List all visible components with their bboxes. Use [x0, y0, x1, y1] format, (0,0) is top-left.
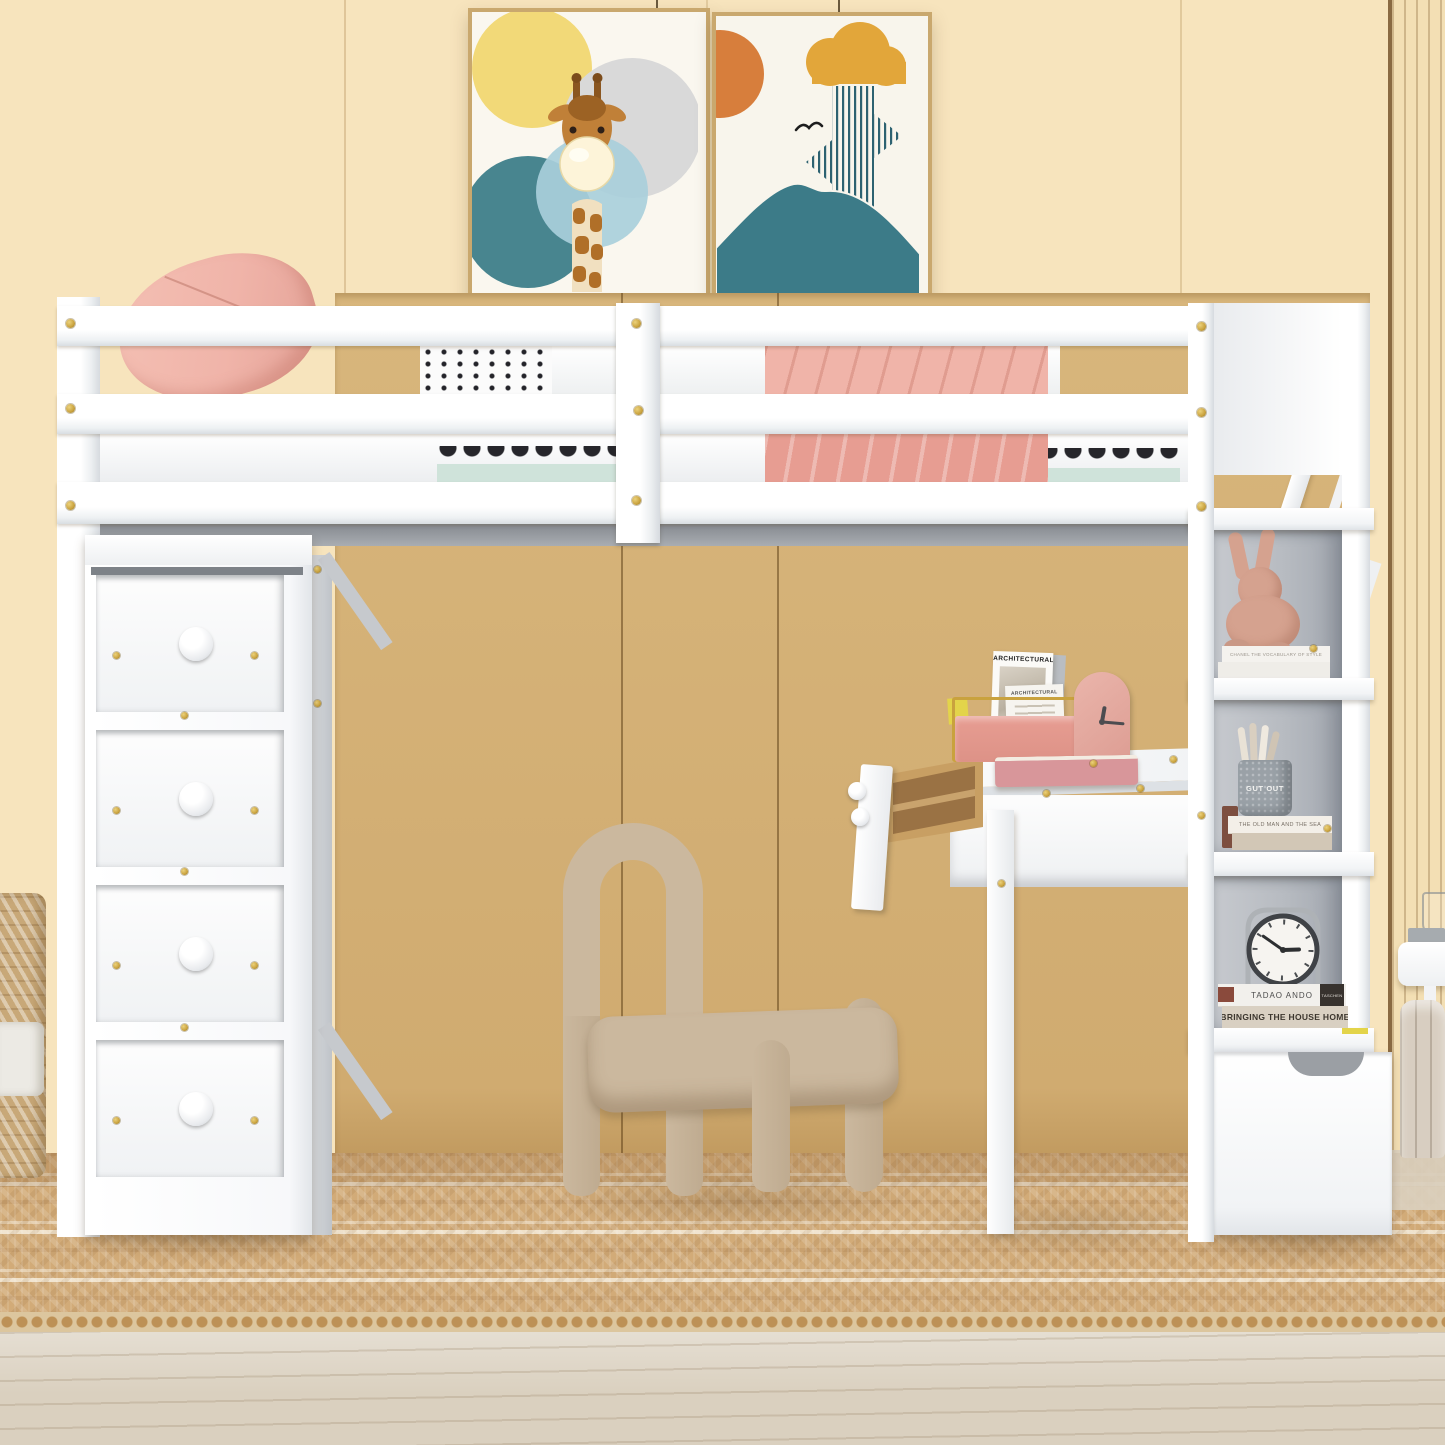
staircase-storage-unit: CHANEL THE VOCABULARY OF STYLE GUT OUT T…	[1188, 295, 1445, 1245]
pen-cup-label: GUT OUT	[1246, 784, 1284, 793]
pamphlet-title: ARCHITECTURAL	[1005, 689, 1063, 697]
pen-cup: GUT OUT	[1238, 760, 1292, 816]
drawer-knob	[179, 937, 213, 971]
screw-accent	[1324, 825, 1331, 832]
book-tadao-ando: TADAO ANDO TASCHEN	[1218, 984, 1346, 1007]
screw-accent	[634, 406, 643, 415]
book-title: THE OLD MAN AND THE SEA	[1239, 822, 1321, 828]
screw-accent	[181, 1024, 188, 1031]
screw-accent	[314, 566, 321, 573]
blanket-pink-bottom	[765, 434, 1048, 482]
screw-accent	[113, 652, 120, 659]
screw-accent	[314, 700, 321, 707]
shelf-board	[1188, 508, 1374, 530]
stair-left-column	[1188, 303, 1214, 1242]
magazine-title: ARCHITECTURAL	[993, 655, 1053, 664]
screw-accent	[66, 501, 75, 510]
screw-accent	[1197, 408, 1206, 417]
scallop-trim	[437, 446, 640, 464]
chest-top	[85, 535, 312, 565]
screw-accent	[251, 652, 258, 659]
screw-accent	[181, 868, 188, 875]
basket-cloth	[0, 1022, 44, 1096]
chest-drawer	[96, 575, 284, 712]
drawer-knob	[179, 782, 213, 816]
book-title: BRINGING THE HOUSE HOME	[1222, 1012, 1348, 1022]
chair-front-leg	[752, 1040, 790, 1192]
drawer-knob	[179, 627, 213, 661]
screw-accent	[113, 1117, 120, 1124]
publisher-text: TASCHEN	[1322, 993, 1343, 998]
book-beige	[1232, 833, 1332, 850]
chair-back-arch	[563, 823, 703, 1023]
dino-print-fabric	[420, 346, 552, 394]
screw-accent	[251, 962, 258, 969]
screw-accent	[1310, 645, 1317, 652]
pencil	[1249, 723, 1257, 765]
chest-top-shadow	[91, 567, 303, 575]
drawer-knob	[848, 782, 866, 800]
screw-accent	[1197, 322, 1206, 331]
wall-seam	[1180, 0, 1182, 300]
poster-giraffe-art	[472, 12, 698, 292]
wall-seam	[344, 0, 346, 295]
scallop-trim	[1038, 448, 1180, 466]
drawer-cutout-handle	[1288, 1052, 1364, 1076]
desk: ARCHITECTURAL ARCHITECTURAL	[840, 640, 1210, 1240]
screw-accent	[66, 404, 75, 413]
chest-drawer	[96, 885, 284, 1022]
screw-accent	[1170, 756, 1177, 763]
screw-accent	[181, 712, 188, 719]
screw-accent	[1090, 760, 1097, 767]
poster-giraffe	[468, 8, 710, 304]
blanket-pink-top	[765, 346, 1048, 394]
drawer-chest	[85, 535, 312, 1235]
shelf-board	[1188, 678, 1374, 700]
chest-drawer	[96, 730, 284, 867]
screw-accent	[1137, 785, 1144, 792]
mint-trim	[1038, 468, 1180, 482]
screw-accent	[113, 962, 120, 969]
poster-abstract-art	[716, 16, 920, 296]
stair-headboard-panel	[1214, 303, 1342, 475]
shelf-board	[1188, 852, 1374, 876]
desk-leg	[987, 810, 1014, 1234]
screw-accent	[1198, 812, 1205, 819]
chest-support-bar	[310, 555, 332, 1235]
screw-accent	[251, 807, 258, 814]
wood-floor	[0, 1332, 1445, 1445]
yellow-sticker	[1342, 1028, 1368, 1034]
stair-bottom-drawer	[1214, 1052, 1392, 1235]
bed-center-post	[616, 303, 660, 543]
desk-clock-minute-hand	[1102, 721, 1124, 726]
chest-drawer	[96, 1040, 284, 1177]
screw-accent	[251, 1117, 258, 1124]
book-publisher-block: TASCHEN	[1320, 984, 1344, 1006]
book-red-label	[1218, 987, 1234, 1002]
poster-abstract-landscape	[712, 12, 932, 308]
screw-accent	[632, 496, 641, 505]
book-old-man-sea: THE OLD MAN AND THE SEA	[1228, 816, 1332, 834]
screw-accent	[113, 807, 120, 814]
screw-accent	[1197, 502, 1206, 511]
screw-accent	[632, 319, 641, 328]
book-bringing-home: BRINGING THE HOUSE HOME	[1222, 1006, 1348, 1028]
book-title: TADAO ANDO	[1251, 991, 1313, 1000]
screw-accent	[1043, 790, 1050, 797]
drawer-knob	[179, 1092, 213, 1126]
rug-braided-edge	[0, 1312, 1445, 1332]
desk-book	[995, 755, 1139, 787]
bedroom-scene: ARCHITECTURAL ARCHITECTURAL	[0, 0, 1445, 1445]
screw-accent	[998, 880, 1005, 887]
desk-clock	[1074, 672, 1130, 764]
drawer-knob	[851, 808, 869, 826]
book-stack-bottom	[1218, 662, 1330, 679]
screw-accent	[66, 319, 75, 328]
book-spine-text: CHANEL THE VOCABULARY OF STYLE	[1230, 652, 1322, 657]
